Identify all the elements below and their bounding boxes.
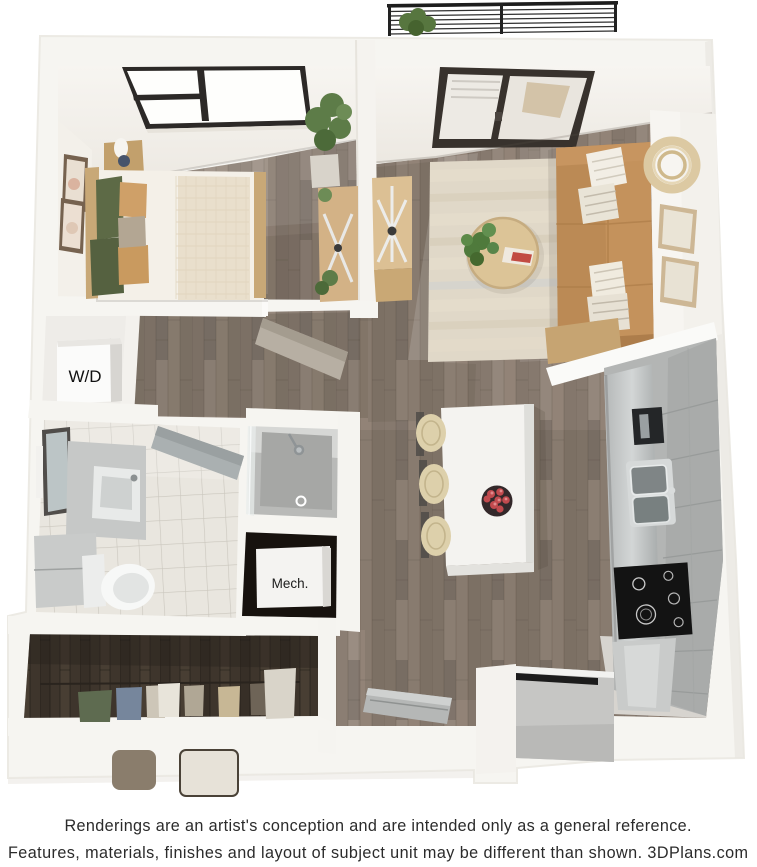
svg-text:Mech.: Mech. (272, 576, 309, 591)
svg-text:W/D: W/D (68, 367, 101, 386)
svg-text:Renderings are an artist's con: Renderings are an artist's conception an… (65, 817, 692, 835)
svg-text:Features, materials, finishes: Features, materials, finishes and layout… (8, 844, 748, 862)
